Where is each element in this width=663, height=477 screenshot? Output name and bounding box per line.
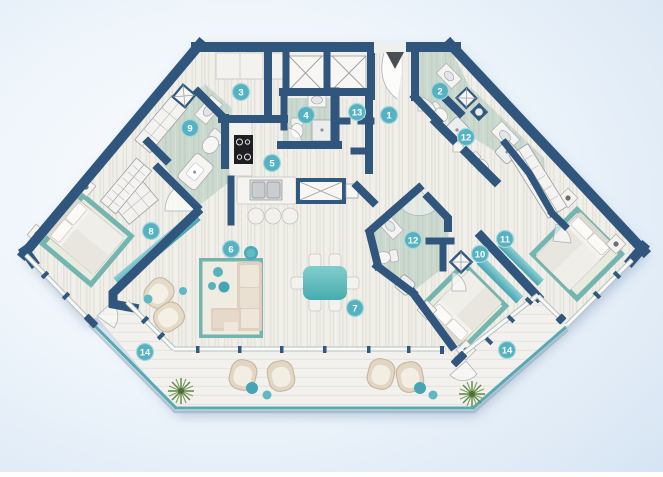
svg-text:12: 12 — [461, 133, 472, 144]
svg-text:7: 7 — [352, 304, 357, 315]
svg-text:13: 13 — [352, 108, 363, 119]
svg-text:6: 6 — [228, 245, 233, 256]
svg-text:12: 12 — [408, 236, 419, 247]
svg-text:10: 10 — [475, 250, 486, 261]
svg-text:1: 1 — [386, 111, 392, 122]
svg-text:4: 4 — [303, 111, 309, 122]
svg-text:8: 8 — [148, 227, 153, 238]
svg-text:5: 5 — [269, 159, 275, 170]
svg-text:11: 11 — [500, 235, 511, 246]
svg-text:3: 3 — [238, 88, 243, 99]
svg-text:14: 14 — [140, 348, 151, 359]
svg-text:14: 14 — [502, 346, 513, 357]
svg-text:9: 9 — [187, 124, 192, 135]
svg-text:2: 2 — [437, 87, 442, 98]
